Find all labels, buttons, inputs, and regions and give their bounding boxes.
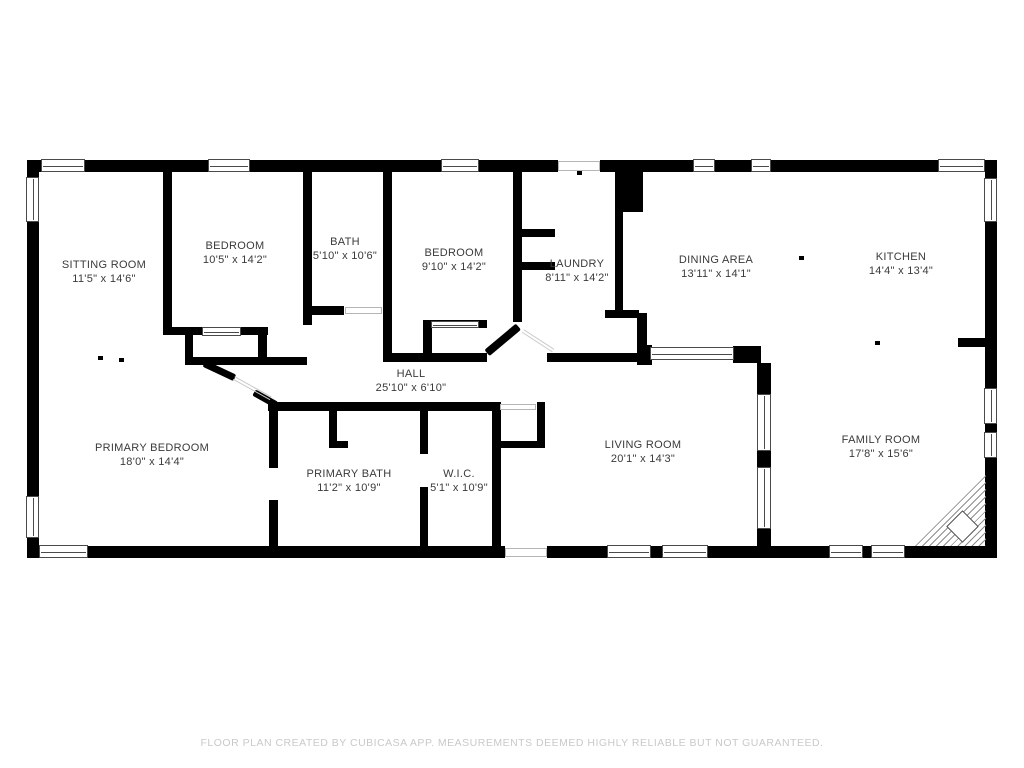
window — [829, 545, 863, 558]
wall — [905, 546, 997, 558]
wall — [637, 313, 647, 347]
dimension-tick — [577, 171, 582, 175]
room-label-kitchen: KITCHEN 14'4" x 13'4" — [811, 250, 991, 278]
window — [984, 432, 997, 458]
door-swing — [522, 329, 554, 352]
wall — [757, 451, 771, 467]
wall — [329, 441, 348, 448]
door-opening — [505, 548, 547, 557]
dimension-tick — [311, 403, 316, 407]
wall — [985, 458, 997, 558]
wall — [605, 310, 639, 318]
window — [431, 321, 479, 328]
window — [26, 177, 39, 222]
door-swing — [233, 376, 272, 400]
room-name: KITCHEN — [811, 250, 991, 264]
wall — [651, 546, 662, 558]
room-dimensions: 25'10" x 6'10" — [321, 381, 501, 395]
window — [41, 159, 85, 172]
wall — [27, 546, 39, 558]
dimension-tick — [875, 341, 880, 345]
wall — [268, 402, 497, 411]
wall — [423, 326, 432, 356]
window — [938, 159, 985, 172]
room-name: FAMILY ROOM — [791, 433, 971, 447]
wall — [27, 160, 39, 177]
room-name: W.I.C. — [369, 467, 549, 481]
window — [984, 388, 997, 424]
room-name: LIVING ROOM — [553, 438, 733, 452]
wall — [985, 424, 997, 432]
wall — [757, 363, 771, 394]
door-opening — [558, 161, 600, 171]
window — [751, 159, 771, 172]
room-label-living-room: LIVING ROOM 20'1" x 14'3" — [553, 438, 733, 466]
room-dimensions: 20'1" x 14'3" — [553, 452, 733, 466]
room-dimensions: 18'0" x 14'4" — [62, 455, 242, 469]
wall — [985, 160, 997, 178]
wall — [269, 500, 278, 547]
wall — [643, 160, 693, 172]
window — [441, 159, 479, 172]
wall — [863, 546, 871, 558]
door-opening — [500, 404, 536, 410]
wall — [185, 333, 193, 359]
room-label-hall: HALL 25'10" x 6'10" — [321, 367, 501, 395]
floor-plan-canvas: SITTING ROOM 11'5" x 14'6" BEDROOM 10'5"… — [0, 0, 1024, 768]
window — [650, 347, 734, 360]
dimension-tick — [253, 330, 258, 334]
wall — [88, 546, 505, 558]
room-name: HALL — [321, 367, 501, 381]
room-label-dining-area: DINING AREA 13'11" x 14'1" — [626, 253, 806, 281]
window — [39, 545, 88, 558]
room-dimensions: 11'5" x 14'6" — [14, 272, 194, 286]
wall — [383, 353, 487, 362]
wall — [708, 546, 829, 558]
window — [208, 159, 250, 172]
room-dimensions: 13'11" x 14'1" — [626, 267, 806, 281]
door-leaf — [484, 324, 521, 356]
wall — [303, 306, 344, 315]
wall — [547, 353, 641, 362]
window — [607, 545, 651, 558]
dimension-tick — [119, 358, 124, 362]
room-name: DINING AREA — [626, 253, 806, 267]
wall — [85, 160, 208, 172]
wall — [771, 160, 938, 172]
corner-fireplace — [915, 475, 986, 546]
wall — [258, 333, 267, 359]
wall — [985, 222, 997, 388]
wall — [269, 402, 278, 468]
dimension-tick — [457, 354, 462, 358]
window — [662, 545, 708, 558]
window — [984, 178, 997, 222]
wall — [522, 229, 555, 237]
footer-disclaimer: FLOOR PLAN CREATED BY CUBICASA APP. MEAS… — [0, 737, 1024, 749]
wall — [163, 327, 203, 335]
wall — [479, 160, 558, 172]
window — [202, 327, 241, 336]
wall — [757, 529, 771, 547]
wall — [733, 346, 761, 363]
wall — [615, 160, 643, 212]
wall — [420, 410, 428, 454]
wall — [600, 160, 615, 172]
door-opening — [345, 307, 382, 314]
wall — [250, 160, 441, 172]
room-dimensions: 17'8" x 15'6" — [791, 447, 971, 461]
wall — [958, 338, 988, 347]
window — [693, 159, 715, 172]
window — [757, 467, 771, 529]
wall — [497, 441, 545, 448]
room-label-wic: W.I.C. 5'1" x 10'9" — [369, 467, 549, 495]
wall — [715, 160, 751, 172]
room-dimensions: 5'1" x 10'9" — [369, 481, 549, 495]
dimension-tick — [98, 356, 103, 360]
wall — [547, 546, 607, 558]
window — [871, 545, 905, 558]
room-name: PRIMARY BEDROOM — [62, 441, 242, 455]
wall — [420, 487, 428, 547]
fireplace-diamond-icon — [946, 510, 979, 543]
room-label-primary-bedroom: PRIMARY BEDROOM 18'0" x 14'4" — [62, 441, 242, 469]
room-label-family-room: FAMILY ROOM 17'8" x 15'6" — [791, 433, 971, 461]
room-dimensions: 14'4" x 13'4" — [811, 264, 991, 278]
window — [26, 496, 39, 538]
window — [757, 394, 771, 451]
